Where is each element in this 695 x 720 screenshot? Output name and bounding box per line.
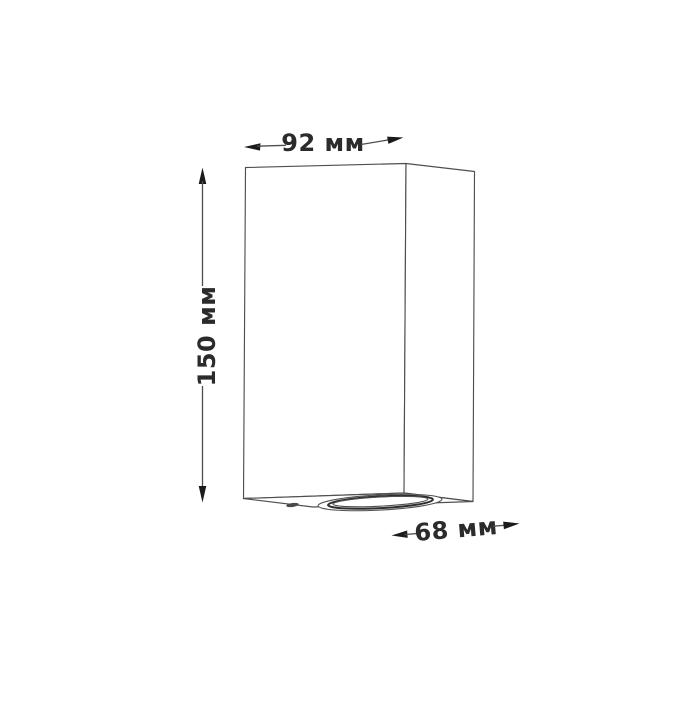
dimension-depth: 68 мм [392, 512, 520, 547]
box-front-face [244, 164, 407, 499]
width-arrow-left-icon [244, 143, 261, 150]
height-arrow-down-icon [199, 486, 207, 503]
height-label: 150 мм [193, 286, 221, 387]
box-outline [244, 164, 475, 514]
dimension-drawing-page: 92 мм 150 мм 68 мм [0, 0, 695, 720]
dimension-height: 150 мм [193, 168, 221, 503]
depth-arrow-right-icon [503, 522, 519, 530]
technical-drawing: 92 мм 150 мм 68 мм [0, 0, 695, 720]
box-side-face [404, 164, 475, 502]
depth-label: 68 мм [413, 512, 499, 547]
width-line-right [361, 140, 389, 145]
width-arrow-right-icon [387, 137, 403, 144]
width-label: 92 мм [281, 129, 365, 157]
dimension-width: 92 мм [244, 129, 404, 157]
